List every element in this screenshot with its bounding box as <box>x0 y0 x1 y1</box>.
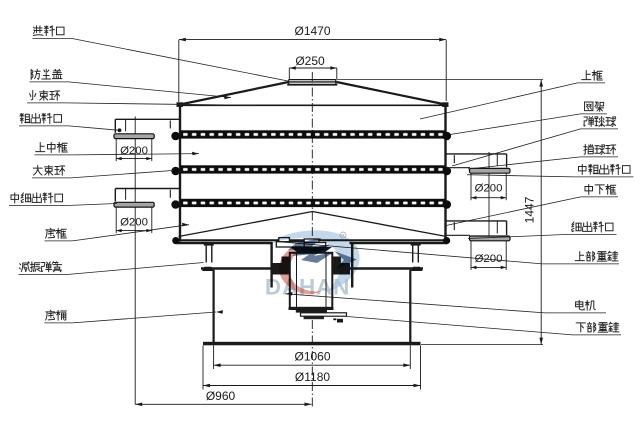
svg-text:Ø250: Ø250 <box>295 54 325 68</box>
svg-text:1447: 1447 <box>523 196 537 223</box>
svg-text:Ø1470: Ø1470 <box>294 24 330 38</box>
svg-text:Ø1060: Ø1060 <box>294 350 330 364</box>
svg-text:Ø200: Ø200 <box>475 183 503 195</box>
svg-text:Ø200: Ø200 <box>120 145 148 157</box>
svg-text:Ø200: Ø200 <box>120 217 148 229</box>
svg-text:Ø1180: Ø1180 <box>295 370 330 384</box>
svg-text:Ø960: Ø960 <box>206 389 236 403</box>
